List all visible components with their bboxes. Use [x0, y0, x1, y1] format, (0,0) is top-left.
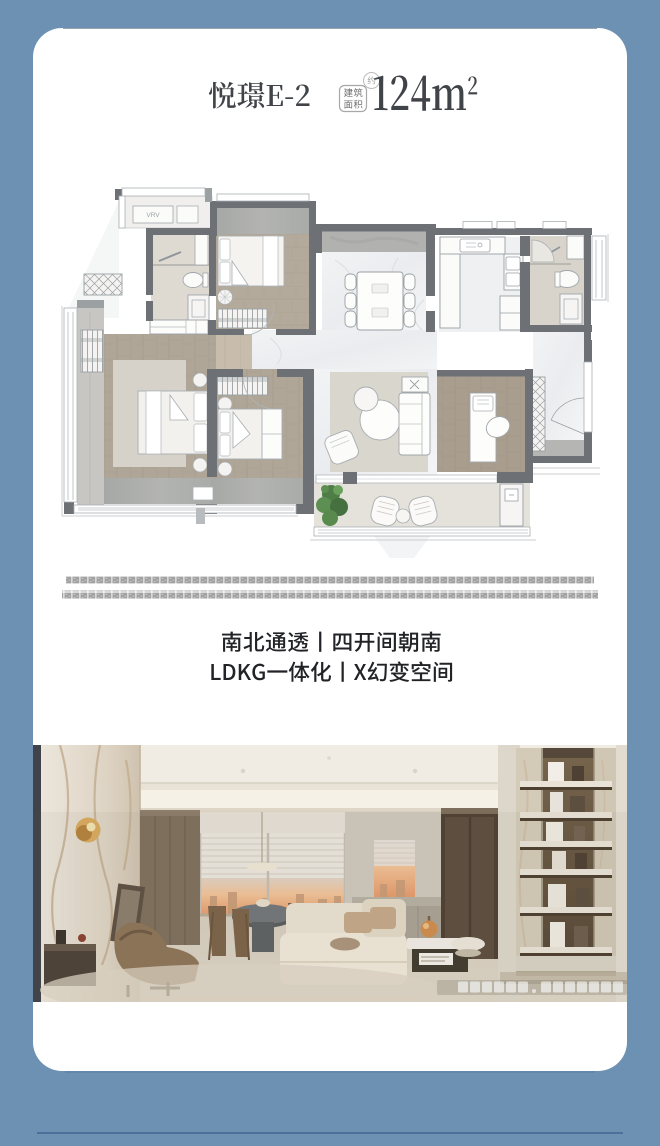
svg-text:VRV: VRV: [146, 212, 160, 219]
